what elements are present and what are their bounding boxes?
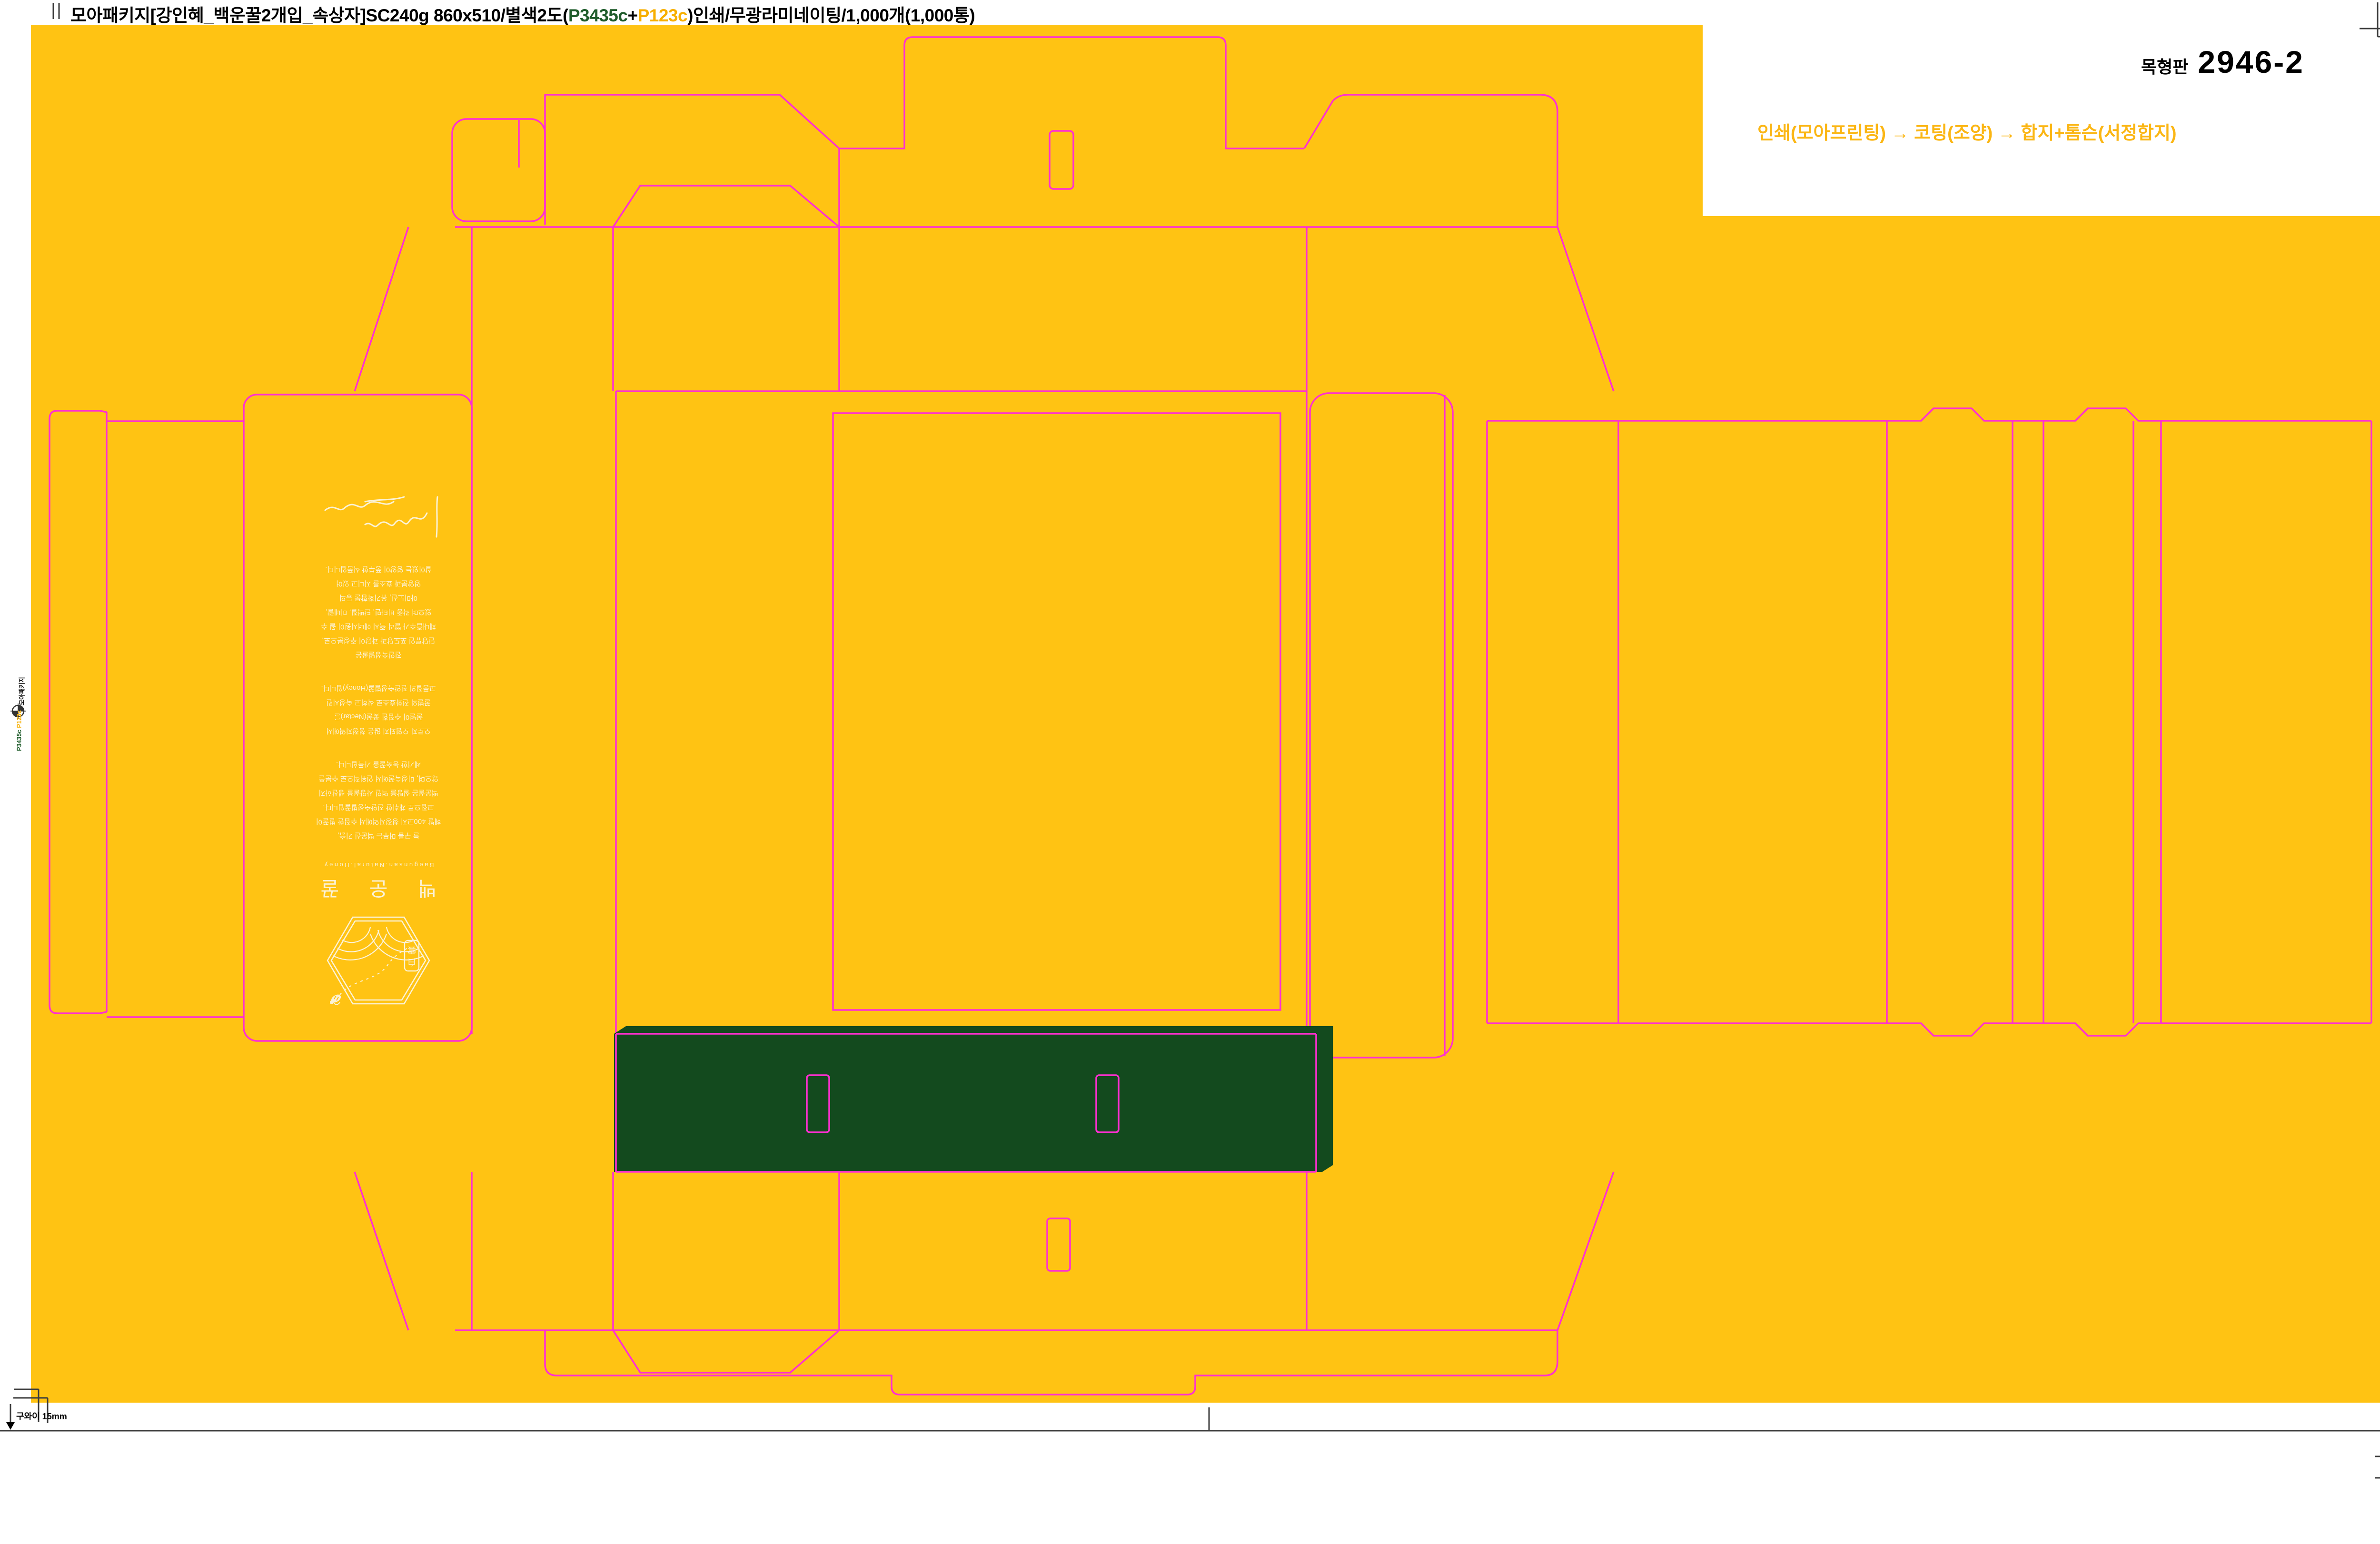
text-line: 늘 구름 머무는 백운산 기슭,	[269, 828, 488, 842]
brand-name-en: Baegunsan.Natural.Honey	[269, 861, 488, 869]
text-line: 고집으로 채취한 진안숙성벌꿀입니다.	[269, 800, 488, 814]
text-line: 꿀벌의 전화효소로 삭히고 숙성시킨	[269, 695, 488, 709]
seal-char-bottom: 雲	[407, 945, 416, 955]
left-margin-spot-colors: P3435c P123c	[16, 710, 23, 751]
mountain-arcs	[324, 927, 433, 960]
text-line: 제거한 농축꿀을 가득합니다.	[269, 757, 488, 771]
brand-name-kr: 백 운 꿀	[269, 875, 488, 904]
honeycomb-logo: 白 雲	[324, 909, 433, 1009]
text-line: 백운꿀은 설탕을 먹인 사양꿀을 생산하지	[269, 785, 488, 800]
panel-paragraph-3: 진안숙성벌꿀은단당류인 포도당과 과당이 주성분으로,체내흡수가 빨라 즉시 에…	[269, 562, 488, 662]
gripper-note: 구와이 15mm	[16, 1410, 67, 1422]
text-line: 살아있는 영양이 풍부한 식품입니다.	[269, 562, 488, 576]
panel-paragraph-1: 늘 구름 머무는 백운산 기슭,해발 400고지 청정지역에서 수집한 벌꿀이고…	[269, 757, 488, 842]
spot-color-1: P3435c	[568, 6, 628, 25]
signature-area	[269, 483, 488, 543]
bee-flight-path	[340, 948, 407, 995]
text-line: 오로지 오염되지 않은 청정지역에서	[269, 723, 488, 738]
text-line: 체내흡수가 빨라 즉시 에너지원이 될 수	[269, 619, 488, 633]
seal-char-top: 白	[407, 957, 416, 967]
hexagon-logo-icon: 白 雲	[324, 911, 433, 1009]
signature-icon	[307, 485, 450, 543]
left-spot1: P3435c	[16, 730, 23, 751]
text-line: 꿀벌이 수집한 꽃꿀(Nectar)를	[269, 709, 488, 723]
text-line: 단당류인 포도당과 과당이 주성분으로,	[269, 633, 488, 647]
job-title-prefix: 모아패키지[강인혜_백운꿀2개입_속상자]SC240g 860x510/별색2도…	[70, 6, 568, 25]
text-line: 있으며 각종 비타민, 단백질, 미네랄,	[269, 604, 488, 619]
job-title-suffix: )인쇄/무광라미네이팅/1,000개(1,000통)	[687, 6, 975, 25]
text-line: 아미노산, 유기화합물 등의	[269, 590, 488, 604]
text-line: 않으며, 미성숙꿀에서 인위적으로 수분을	[269, 771, 488, 785]
green-band	[614, 1026, 1333, 1172]
text-line: 고품질의 진안숙성벌꿀(Honey)입니다.	[269, 681, 488, 695]
left-spot2: P123c	[16, 710, 23, 728]
text-line: 진안숙성벌꿀은	[269, 647, 488, 662]
artboard: 모아패키지[강인혜_백운꿀2개입_속상자]SC240g 860x510/별색2도…	[0, 0, 2380, 1544]
plus-sign: +	[627, 6, 637, 25]
job-title: 모아패키지[강인혜_백운꿀2개입_속상자]SC240g 860x510/별색2도…	[70, 1, 975, 27]
panel-paragraph-2: 오로지 오염되지 않은 청정지역에서꿀벌이 수집한 꽃꿀(Nectar)를꿀벌의…	[269, 681, 488, 738]
gripper-arrow-icon	[6, 1404, 15, 1430]
plate-number-block: 목형판 2946-2	[2141, 44, 2304, 80]
spot-color-2: P123c	[638, 6, 688, 25]
text-line: 해발 400고지 청정지역에서 수집한 벌꿀이	[269, 814, 488, 828]
plate-label: 목형판	[2141, 53, 2188, 78]
printed-side-panel: 白 雲 백 운 꿀 Baegunsan.Natural.Honey 늘 구름 머…	[269, 447, 488, 1009]
text-line: 영양분과 효소를 지니고 있어	[269, 576, 488, 590]
plate-number: 2946-2	[2198, 44, 2304, 80]
left-margin-job-label: 모아패키지	[17, 677, 26, 705]
workflow-note: 인쇄(모아프린팅) → 코팅(조양) → 합지+톰슨(서정합지)	[1757, 118, 2177, 144]
